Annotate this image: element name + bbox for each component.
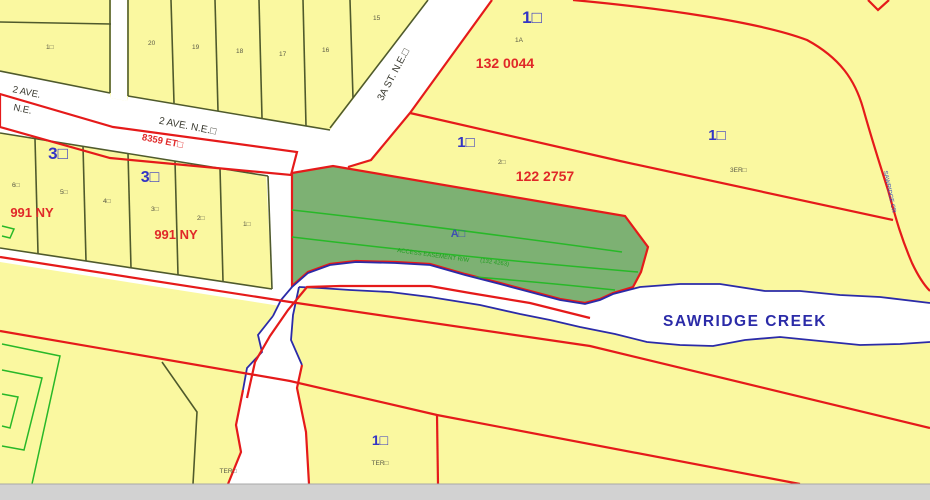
- lot-4-label: 4□: [103, 198, 111, 205]
- lot-6-label: 6□: [12, 182, 20, 189]
- lot-1a-label: 1A: [515, 37, 524, 44]
- block-3-left-label: 3□: [48, 144, 68, 163]
- plan-132-0044-label: 132 0044: [476, 55, 535, 71]
- block-1-right-label: 1□: [708, 127, 725, 144]
- block-1-top-label: 1□: [522, 8, 542, 27]
- lot-2-left-label: 2□: [197, 215, 205, 222]
- parcel-a-label: A□: [451, 228, 466, 240]
- lot-15-label: 15: [373, 15, 381, 22]
- block-1-bottom-label: 1□: [372, 432, 389, 448]
- lot-16-label: 16: [322, 47, 330, 54]
- block-a-lot-label: 1□: [46, 44, 54, 51]
- block-1-mid-label: 1□: [457, 134, 474, 151]
- parcel-map-viewport[interactable]: 1□ 20 19 18 17 16 15 2 AVE. N.E. 2 AVE. …: [0, 0, 930, 500]
- sawridge-creek-label: SAWRIDGE CREEK: [663, 313, 827, 330]
- lot-17-label: 17: [279, 51, 287, 58]
- lot-2-label: 2□: [498, 159, 506, 166]
- ter-left-label: TER□: [220, 468, 237, 475]
- block-3-center-label: 3□: [141, 169, 160, 186]
- lot-5-label: 5□: [60, 189, 68, 196]
- lot-19-label: 19: [192, 44, 200, 51]
- ter-right-label: TER□: [372, 460, 389, 467]
- lot-20-label: 20: [148, 40, 156, 47]
- lot-1-left-label: 1□: [243, 221, 251, 228]
- parcel-map-canvas: 1□ 20 19 18 17 16 15 2 AVE. N.E. 2 AVE. …: [0, 0, 930, 500]
- lot-3-label: 3□: [151, 206, 159, 213]
- plan-991ny-left-label: 991 NY: [10, 205, 54, 220]
- plan-122-2757-label: 122 2757: [516, 168, 575, 184]
- street-lane[interactable]: [111, 0, 127, 101]
- map-edge-gray-strip: [0, 484, 930, 500]
- lot-18-label: 18: [236, 48, 244, 55]
- red-vertical-boundary: [437, 415, 438, 484]
- plan-991ny-center-label: 991 NY: [154, 227, 198, 242]
- lot-3er-label: 3ER□: [730, 167, 747, 174]
